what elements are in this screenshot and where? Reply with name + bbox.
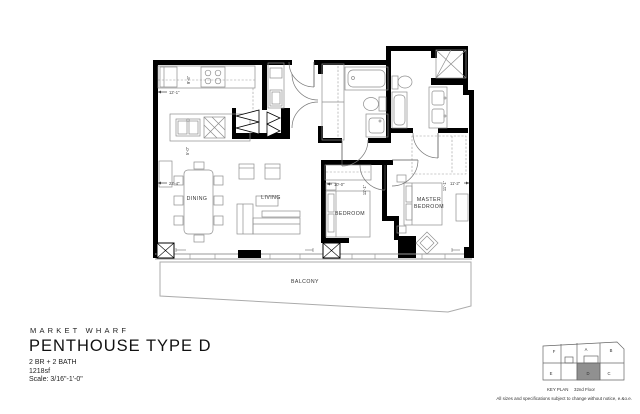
- vanity-sink-icon: [366, 114, 388, 137]
- entry-area: [236, 62, 314, 137]
- island-sink-icon: [176, 119, 200, 136]
- column-hatched-left: [157, 243, 174, 258]
- dimension-bedroom-width: 10'-0": [334, 182, 345, 187]
- bathtub-icon: [345, 67, 388, 90]
- dimension-master-width: 11'-2": [450, 181, 461, 186]
- dining-table-icon: [174, 162, 223, 242]
- dimensions: 12'-1" 9'-6" 5'-0" 22'-4" 10'-0" 11'-1" …: [158, 75, 469, 195]
- key-plan-unit-e: E: [550, 371, 553, 376]
- shower-icon: [436, 50, 466, 78]
- master-bath-door-arc: [413, 133, 438, 158]
- ottoman-diamond-icon: [416, 232, 438, 254]
- entry-door-arc: [289, 62, 314, 87]
- disclaimer-text: All sizes and specifications subject to …: [496, 396, 632, 401]
- master-toilet-icon: [392, 76, 412, 89]
- key-plan-unit-c: C: [607, 371, 610, 376]
- main-bathroom: [342, 67, 388, 166]
- column-hatched-bedroom: [323, 243, 340, 258]
- key-plan-label: KEY PLAN: [547, 387, 568, 392]
- project-name: MARKET WHARF: [30, 326, 212, 335]
- key-plan-unit-d: D: [586, 371, 589, 376]
- room-label-living: LIVING: [261, 195, 281, 201]
- refrigerator-icon: [160, 67, 177, 87]
- key-plan-unit-b: B: [610, 348, 613, 353]
- plan-scale: Scale: 3/16"-1'-0": [29, 376, 212, 385]
- dimension-bedroom-depth: 11'-1": [362, 184, 367, 195]
- foyer-cabinet: [268, 63, 284, 108]
- plan-configuration: 2 BR + 2 BATH: [29, 359, 212, 368]
- toilet-icon: [364, 97, 387, 111]
- master-bathroom: [392, 50, 466, 158]
- bifold-closet-doors-icon: [236, 110, 280, 137]
- master-bathtub-icon: [392, 92, 407, 128]
- island-hatch: [204, 117, 225, 138]
- room-label-master-line2: BEDROOM: [414, 204, 444, 210]
- bedroom: [325, 165, 385, 237]
- key-plan-floor: 32nd Floor: [574, 387, 596, 392]
- dimension-island: 5'-0": [185, 146, 190, 155]
- walk-in-closet-dashed: [412, 136, 466, 174]
- dimension-kitchen-width: 12'-1": [169, 90, 180, 95]
- room-label-balcony: BALCONY: [291, 279, 319, 285]
- dimension-kitchen-depth: 9'-6": [186, 75, 191, 84]
- room-label-bedroom: BEDROOM: [335, 211, 365, 217]
- range-burners-icon: [201, 67, 225, 87]
- plan-area: 1218sf: [29, 368, 212, 377]
- plan-title: PENTHOUSE TYPE D: [29, 337, 212, 356]
- key-plan-unit-f: F: [553, 349, 556, 354]
- key-plan-unit-a: A: [585, 347, 588, 352]
- title-block: MARKET WHARF PENTHOUSE TYPE D 2 BR + 2 B…: [29, 326, 212, 385]
- dimension-living-width: 22'-4": [169, 181, 180, 186]
- kitchen: [158, 66, 255, 141]
- balcony-outline: [160, 262, 471, 312]
- master-vanity-icon: [429, 87, 447, 128]
- dimension-master-depth: 11'-1": [442, 180, 447, 191]
- sofa-sectional-icon: [237, 204, 300, 234]
- key-plan: F A B E D C KEY PLAN 32nd Floor: [543, 342, 624, 392]
- armchair-icon: [239, 164, 280, 179]
- room-label-dining: DINING: [187, 196, 208, 202]
- floorplan-page: DINING LIVING BEDROOM MASTER BEDROOM BAL…: [0, 0, 640, 414]
- room-label-master-line1: MASTER: [417, 197, 441, 203]
